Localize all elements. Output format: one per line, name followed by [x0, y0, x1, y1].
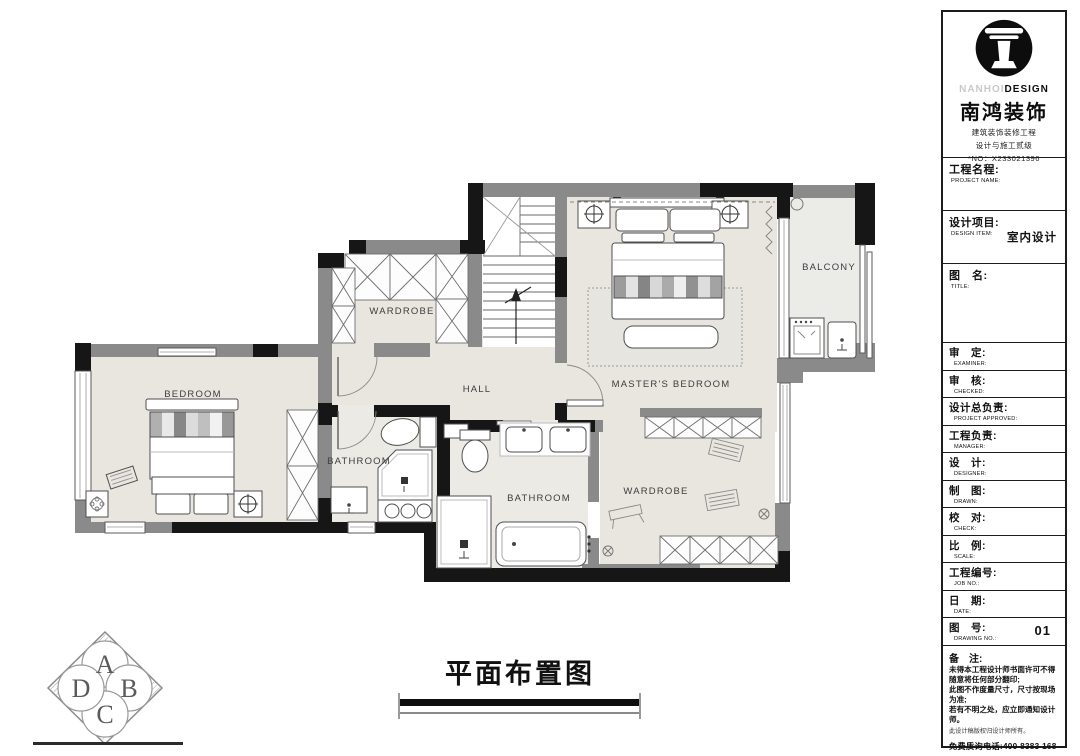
- room-label-bathroom1: BATHROOM: [327, 456, 391, 467]
- brand-subtitle-2: 设计与施工贰级: [949, 140, 1059, 151]
- title-underline-bar: [400, 699, 640, 706]
- nightstand: [86, 491, 108, 517]
- floor-plan: BEDROOM WARDROBE HALL MASTER'S BEDROOM B…: [0, 0, 940, 640]
- room-label-bathroom2: BATHROOM: [507, 493, 571, 504]
- field-drawing-name: 图 名: TITLE:: [943, 264, 1065, 343]
- sheet-bottom-line: [33, 742, 183, 745]
- field-notes: 备 注: 未得本工程设计师书面许可不得 随意将任何部分翻印; 此图不作度量尺寸，…: [943, 646, 1065, 755]
- field-drawing-no: 图 号:DRAWING NO.: 01: [943, 618, 1065, 646]
- design-item-value: 室内设计: [1007, 229, 1057, 245]
- company-logo-icon: [972, 18, 1036, 82]
- bathtub-icon: [496, 522, 586, 566]
- field-job-no: 工程编号:JOB NO.:: [943, 563, 1065, 591]
- field-check: 校 对:CHECK:: [943, 508, 1065, 536]
- title-block: NANHOIDESIGN 南鸿装饰 建筑装饰装修工程 设计与施工贰级 *NO：X…: [941, 10, 1067, 748]
- drawing-sheet: BEDROOM WARDROBE HALL MASTER'S BEDROOM B…: [0, 0, 1080, 756]
- field-project-name: 工程名程: PROJECT NAME:: [943, 158, 1065, 211]
- drawing-no-value: 01: [1035, 623, 1051, 638]
- field-project-approved: 设计总负责:PROJECT APPROVED:: [943, 398, 1065, 426]
- bed-bench-symbol: [624, 326, 718, 348]
- field-scale: 比 例:SCALE:: [943, 536, 1065, 564]
- room-stairs: [483, 197, 555, 347]
- logo-letter-a: A: [96, 650, 115, 679]
- field-date: 日 期:DATE:: [943, 591, 1065, 619]
- field-drawn: 制 图:DRAWN:: [943, 481, 1065, 509]
- field-manager: 工程负责:MANAGER:: [943, 426, 1065, 454]
- vanity-counter: [378, 500, 432, 522]
- field-designer: 设 计:DESIGNER:: [943, 453, 1065, 481]
- toilet-tank: [460, 430, 490, 440]
- logo-letter-d: D: [72, 674, 91, 703]
- logo-letter-b: B: [120, 674, 137, 703]
- room-label-wardrobe2: WARDROBE: [623, 486, 688, 497]
- room-label-bedroom: BEDROOM: [164, 389, 222, 400]
- company-logo-block: NANHOIDESIGN 南鸿装饰 建筑装饰装修工程 设计与施工贰级 *NO：X…: [943, 12, 1065, 158]
- field-checked: 审 核:CHECKED:: [943, 371, 1065, 399]
- toilet-icon: [462, 440, 488, 472]
- title-underline-thin: [400, 712, 640, 714]
- logo-letter-c: C: [96, 700, 113, 729]
- copyright-note: 此设计稿版权归设计师所有。: [949, 726, 1059, 735]
- field-examiner: 审 定:EXAMINER:: [943, 343, 1065, 371]
- brand-name-zh: 南鸿装饰: [949, 96, 1059, 125]
- brand-subtitle-1: 建筑装饰装修工程: [949, 127, 1059, 138]
- drawing-title: 平面布置图: [397, 652, 643, 691]
- room-label-master-bedroom: MASTER'S BEDROOM: [612, 379, 731, 390]
- room-label-wardrobe1: WARDROBE: [369, 306, 434, 317]
- toilet-tank: [420, 417, 436, 447]
- room-label-hall: HALL: [463, 384, 492, 395]
- room-hall: [332, 357, 445, 405]
- brand-name-en: NANHOIDESIGN: [949, 84, 1059, 95]
- washing-machine-icon: [790, 318, 824, 358]
- abcd-corner-logo: A B C D: [40, 626, 170, 750]
- hotline-phone: 免费质询电话:400 8383 168: [949, 740, 1059, 752]
- room-label-balcony: BALCONY: [802, 262, 856, 273]
- field-design-item: 设计项目: DESIGN ITEM: 室内设计: [943, 211, 1065, 264]
